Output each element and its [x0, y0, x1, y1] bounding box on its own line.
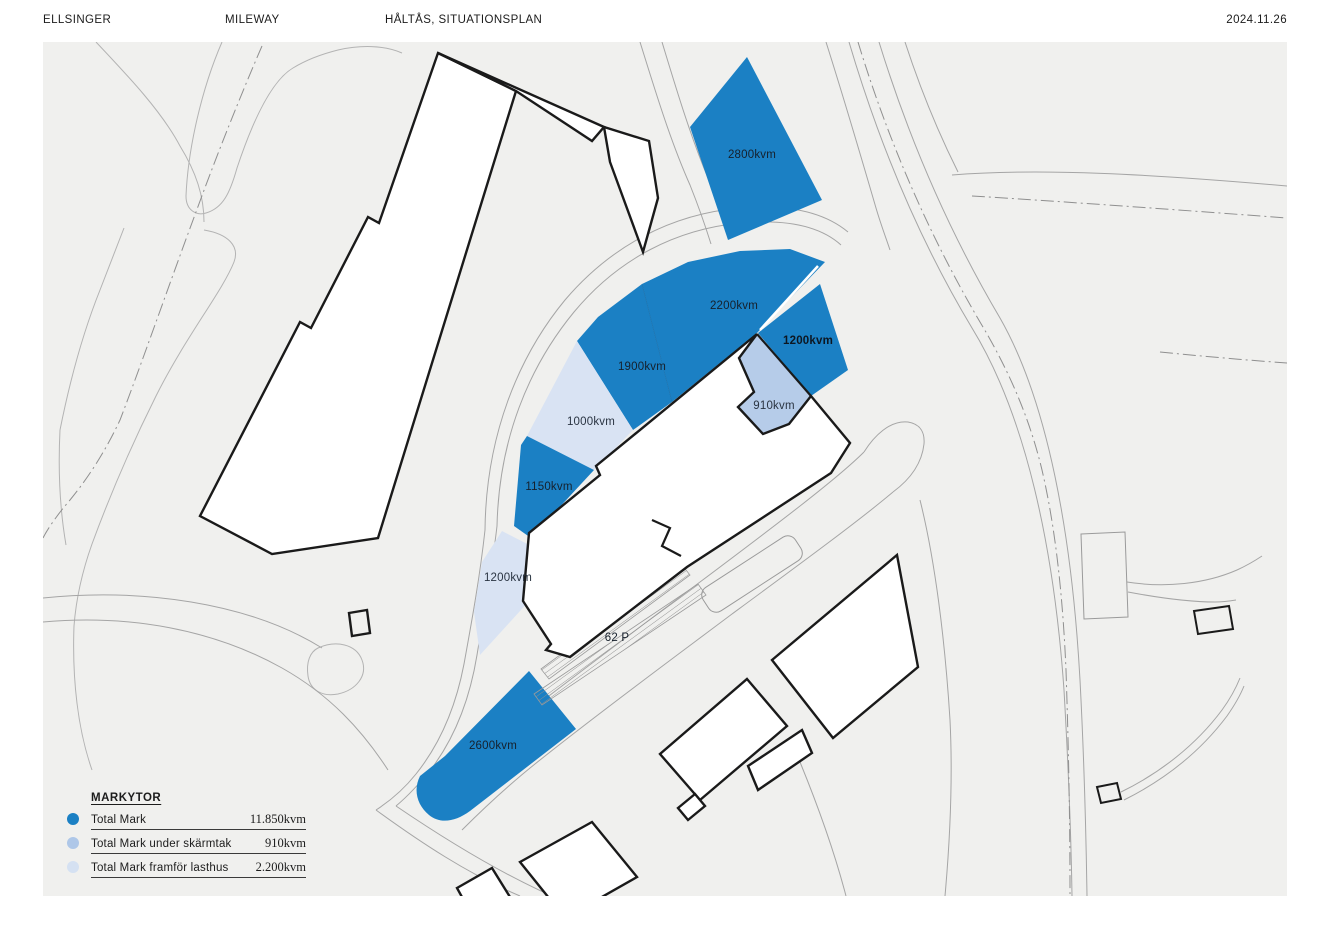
- site-plan-drawing: [43, 42, 1287, 896]
- shed-southeast: [1097, 783, 1121, 803]
- loading-color-dot-icon: [67, 861, 79, 873]
- legend-row-canopy: Total Mark under skärmtak 910kvm: [91, 836, 306, 854]
- legend-title: MARKYTOR: [91, 792, 161, 804]
- plot-outline: [1081, 532, 1128, 619]
- site-plan-canvas: 2800kvm 2200kvm 1900kvm 1200kvm 910kvm 1…: [43, 42, 1287, 896]
- shed-west: [349, 610, 370, 636]
- legend-row-label: Total Mark: [91, 814, 146, 826]
- building-south-large: [772, 555, 918, 738]
- mark-color-dot-icon: [67, 813, 79, 825]
- header-client: ELLSINGER: [43, 14, 111, 26]
- legend-row-value: 910kvm: [265, 836, 306, 851]
- header-date: 2024.11.26: [1226, 14, 1287, 26]
- header-owner: MILEWAY: [225, 14, 280, 26]
- building-bottom-a: [520, 822, 637, 896]
- canopy-color-dot-icon: [67, 837, 79, 849]
- existing-building-large: [200, 53, 516, 554]
- legend-row-loading: Total Mark framför lasthus 2.200kvm: [91, 860, 306, 878]
- page-title: HÅLTÅS, SITUATIONSPLAN: [385, 14, 542, 26]
- legend: MARKYTOR Total Mark 11.850kvm Total Mark…: [66, 788, 311, 884]
- building-bottom-b: [457, 868, 510, 896]
- legend-row-label: Total Mark under skärmtak: [91, 838, 232, 850]
- shed-east: [1194, 606, 1233, 634]
- legend-row-total-mark: Total Mark 11.850kvm: [91, 812, 306, 830]
- legend-row-value: 2.200kvm: [256, 860, 306, 875]
- legend-row-value: 11.850kvm: [250, 812, 306, 827]
- situationsplan-page: ELLSINGER MILEWAY HÅLTÅS, SITUATIONSPLAN…: [0, 0, 1330, 940]
- legend-row-label: Total Mark framför lasthus: [91, 862, 229, 874]
